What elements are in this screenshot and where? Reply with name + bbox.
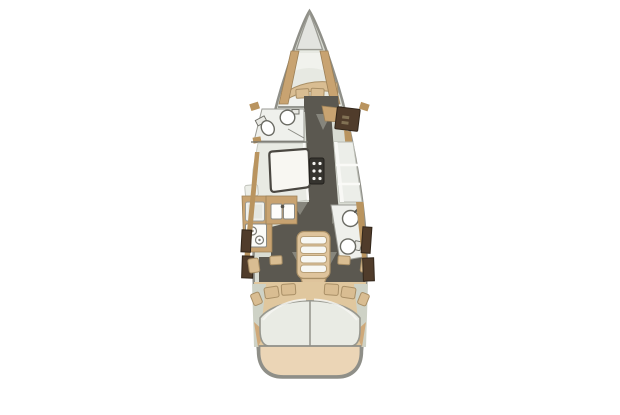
forward-head-sink <box>280 110 295 125</box>
step-4 <box>301 265 327 273</box>
floor-plan-canvas <box>0 0 620 415</box>
step-3 <box>301 256 327 264</box>
pad-starboard <box>338 256 350 265</box>
starboard-locker-mid <box>361 227 372 254</box>
aft-head-sink <box>343 211 359 227</box>
swim-platform <box>260 346 361 376</box>
aft-berths <box>250 282 370 347</box>
step-1 <box>301 237 327 245</box>
port-locker-mid <box>241 230 252 252</box>
centerline-folding-leaf <box>310 158 325 184</box>
aft-pillow-port-inner <box>281 283 296 295</box>
aft-head-toilet <box>340 239 355 254</box>
burner-dot-2 <box>258 239 260 241</box>
aft-pillow-port-outer <box>264 286 280 299</box>
starboard-locker-aft <box>363 258 375 281</box>
salon-table <box>269 149 310 192</box>
aft-pillow-starboard-outer <box>341 286 357 299</box>
galley-faucet <box>281 205 285 209</box>
galley-sink-right <box>284 204 295 219</box>
deck-fitting-port-fwd <box>249 102 260 111</box>
aft-pillow-starboard-inner <box>324 284 339 296</box>
step-2 <box>301 246 327 254</box>
yacht-floor-plan <box>0 0 620 415</box>
galley-sink-left <box>271 204 282 219</box>
forward-head <box>254 109 304 141</box>
stool-port <box>248 258 260 273</box>
pad-port <box>270 256 282 265</box>
starboard-cabinet <box>335 107 361 132</box>
